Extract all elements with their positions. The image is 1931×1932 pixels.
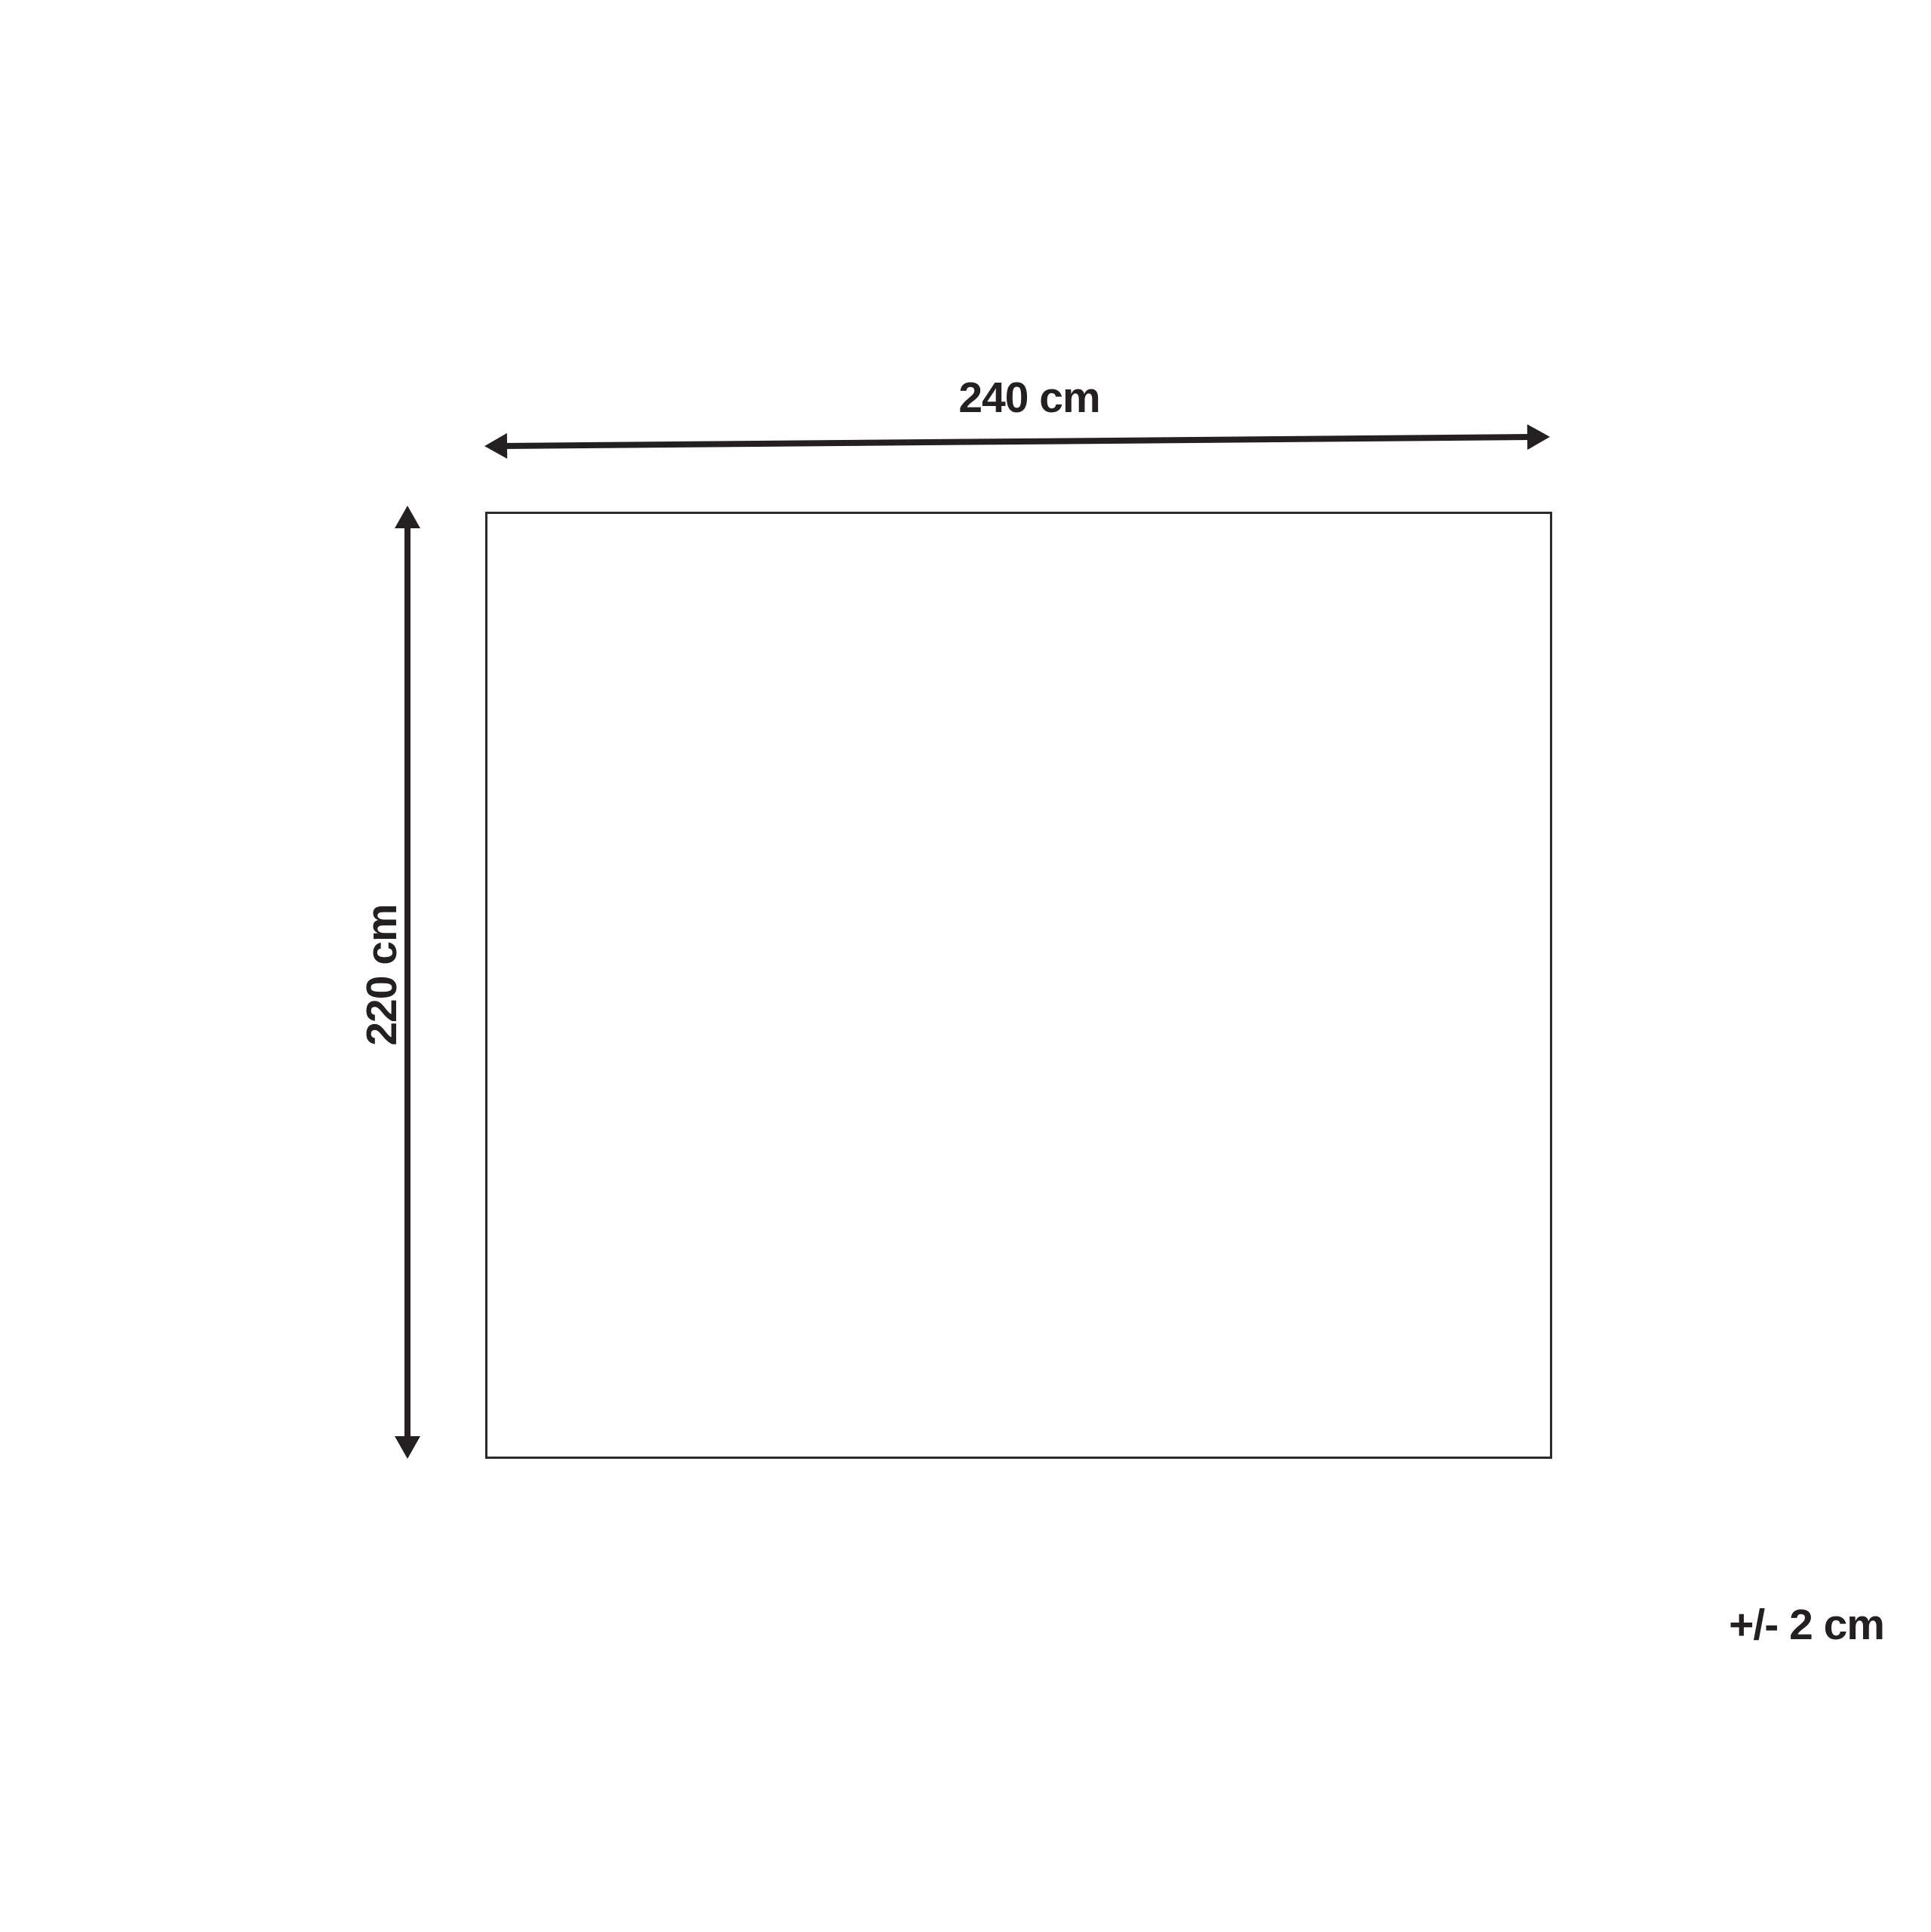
height-label: 220 cm	[355, 786, 408, 1164]
width-arrow-shaft	[503, 437, 1532, 446]
width-arrowhead-right-icon	[1527, 424, 1550, 450]
product-outline-rectangle	[485, 512, 1552, 1459]
height-arrowhead-bottom-icon	[395, 1436, 420, 1459]
tolerance-label: +/- 2 cm	[1507, 1598, 1884, 1651]
width-arrowhead-left-icon	[484, 433, 507, 459]
dimension-diagram: 240 cm 220 cm +/- 2 cm	[0, 0, 1931, 1932]
width-dimension-arrow-icon	[483, 419, 1551, 464]
width-label: 240 cm	[841, 371, 1218, 424]
height-arrowhead-top-icon	[395, 506, 420, 528]
